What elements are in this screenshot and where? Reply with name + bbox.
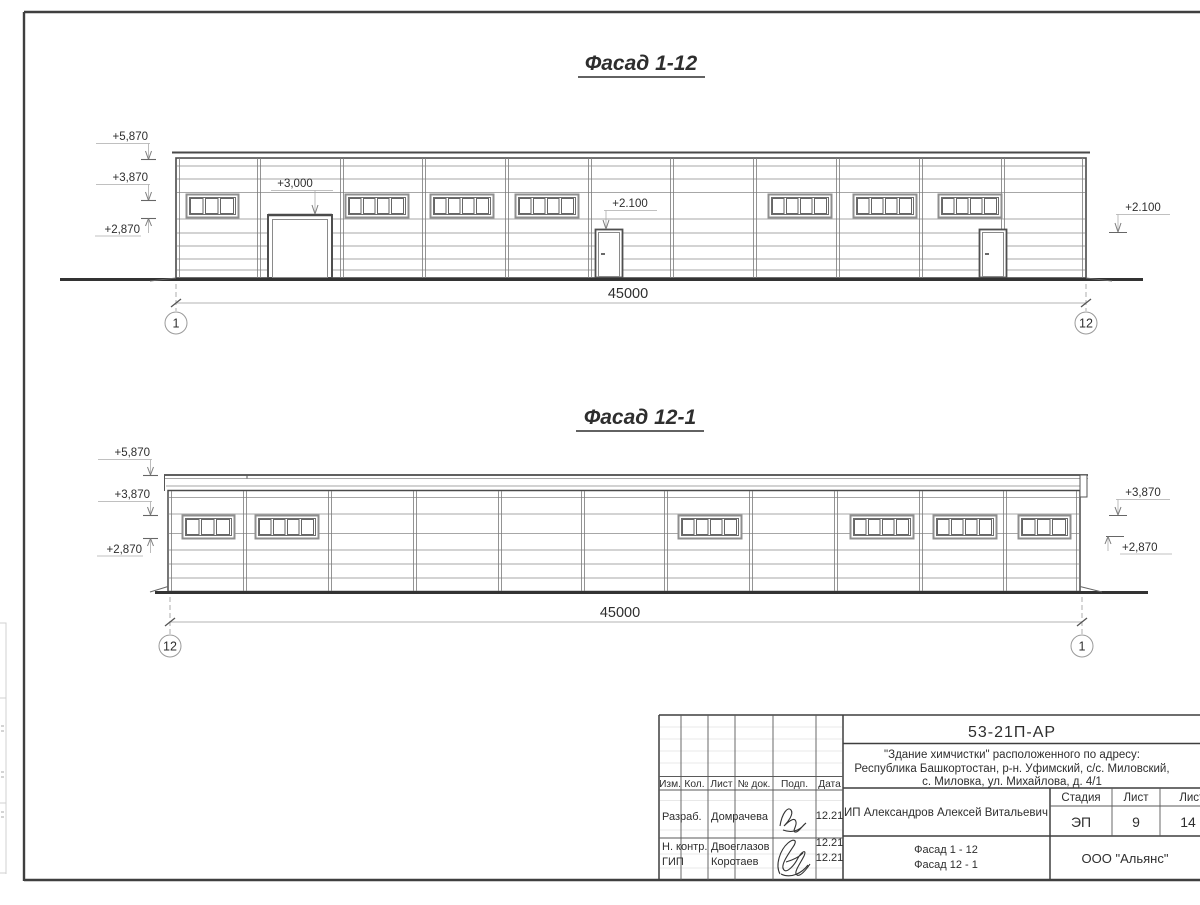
sheets-label: Листов [1179,792,1200,804]
signature-razrab [780,809,806,832]
window [187,195,239,218]
elevation-mark-5870: +5,870 [96,131,156,160]
window [939,195,1002,218]
entry-door [596,230,623,278]
elevation-mark-2100-right: +2.100 [1109,202,1170,233]
sheet-content-line2: Фасад 12 - 1 [914,859,978,871]
signer-name: Двоеглазов [711,841,770,853]
elevation-value: +5,870 [113,131,149,143]
elevation-value: +2,870 [1122,542,1158,554]
elevation-mark-2870-left: +2,870 [97,539,158,557]
title-block: 53-21П-АР "Здание химчистки" расположенн… [659,715,1200,880]
grid-axis-bubble-12-bottom: 12 [159,635,181,657]
dimension-value: 45000 [608,286,648,302]
project-address-line2: Республика Башкортостан, р-н. Уфимский, … [854,763,1169,775]
axis-number: 1 [173,317,180,331]
signature-gip [778,840,810,876]
facades-drawing-svg: Фасад 1-12 [0,0,1200,900]
col-izm: Изм. [659,779,681,790]
stage-label: Стадия [1061,792,1100,804]
col-podp: Подп. [781,779,808,790]
elevation-mark-2870: +2,870 [95,219,156,237]
window [256,516,319,539]
elevation-value: +5,870 [115,447,151,459]
window [516,195,579,218]
sheet-content-line1: Фасад 1 - 12 [914,844,978,856]
col-list: Лист [710,779,732,790]
elevation-value: +2.100 [612,198,648,210]
dimension-line-45000-bottom: 45000 [165,597,1087,634]
signer-name: Коротаев [711,856,759,868]
grid-axis-bubble-12: 12 [1075,312,1097,334]
facade-1-12: Фасад 1-12 [60,52,1170,334]
axis-number: 12 [1079,317,1093,331]
window [1019,516,1071,539]
elevation-value: +3,000 [277,178,313,190]
stage-value: ЭП [1071,814,1091,830]
sheets-value: 14 [1180,814,1196,830]
organization-name: ООО "Альянс" [1082,851,1169,866]
signer-role: Разраб. [662,811,702,823]
dimension-line-45000-top: 45000 [171,284,1091,311]
facade-12-1-building [164,475,1088,592]
document-number: 53-21П-АР [968,724,1056,741]
window [851,516,914,539]
entry-door [980,230,1007,278]
elevation-value: +2,870 [107,544,143,556]
signer-role: ГИП [662,856,684,868]
facade-1-12-building [172,153,1090,279]
project-address-line3: с. Миловка, ул. Михайлова, д. 4/1 [922,776,1102,788]
elevation-value: +3,870 [113,172,149,184]
drawing-sheet: Фасад 1-12 [0,0,1200,900]
signer-date: 12.21 [816,852,844,864]
signer-date: 12.21 [816,810,844,822]
adjacent-sheet-edge-artifact [0,623,7,874]
grid-axis-bubble-1-bottom: 1 [1071,635,1093,657]
facade-1-12-title: Фасад 1-12 [585,52,698,75]
elevation-mark-2870-right: +2,870 [1105,537,1172,555]
client-name: ИП Александров Алексей Витальевич [844,807,1048,819]
window [854,195,917,218]
window [346,195,409,218]
facade-1-12-ground-line [60,278,1143,281]
elevation-value: +2,870 [105,224,141,236]
signer-role: Н. контр. [662,841,707,853]
col-kol: Кол. [684,779,704,790]
facade-12-1: Фасад 12-1 [97,406,1172,657]
signer-date: 12.21 [816,837,844,849]
sheet-value: 9 [1132,814,1140,830]
col-data: Дата [818,779,841,790]
axis-number: 12 [163,640,177,654]
project-address-line1: "Здание химчистки" расположенного по адр… [884,749,1140,761]
facade-12-1-title: Фасад 12-1 [584,406,696,429]
elevation-mark-5870-left: +5,870 [98,447,158,476]
gate-door [268,215,332,278]
window [769,195,832,218]
window [679,516,742,539]
elevation-value: +2.100 [1125,202,1161,214]
elevation-value: +3,870 [1125,487,1161,499]
window [183,516,235,539]
grid-axis-bubble-1: 1 [165,312,187,334]
sheet-label: Лист [1124,792,1150,804]
axis-number: 1 [1079,640,1086,654]
col-ndoc: № док. [738,779,771,790]
window [431,195,494,218]
signer-name: Домрачева [711,811,769,823]
window [934,516,997,539]
elevation-mark-3870-left: +3,870 [98,489,158,516]
elevation-mark-3870: +3,870 [96,172,156,201]
elevation-mark-3870-right: +3,870 [1109,487,1170,516]
elevation-value: +3,870 [115,489,151,501]
dimension-value: 45000 [600,605,640,621]
